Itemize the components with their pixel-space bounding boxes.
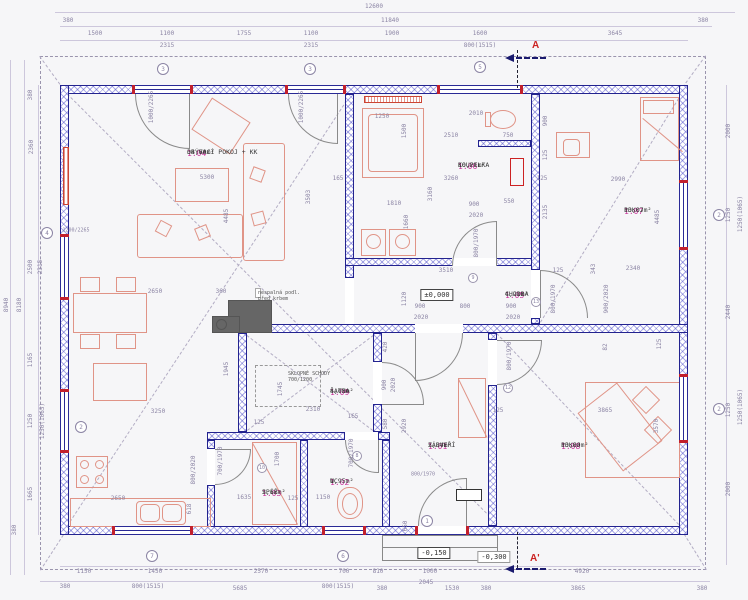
wall-satna-left (238, 333, 247, 432)
jamb-mark (60, 297, 69, 300)
window-right-room108 (679, 377, 688, 440)
wall-bath-bottom (345, 258, 540, 266)
section-line-bottom (517, 532, 518, 568)
wall-middle-horizontal (238, 324, 688, 333)
door-gap-room107 (531, 270, 540, 318)
jamb-mark (437, 85, 440, 94)
toilet-bath-tank (485, 112, 491, 127)
dim-label: 3645 (608, 31, 622, 37)
dim-line (60, 26, 712, 27)
opening-tag: 10 (257, 463, 267, 473)
jamb-mark (190, 85, 193, 94)
opening-living-chodba (345, 278, 354, 324)
room-area: 5,84m² (428, 442, 451, 450)
dim-label: 1700 (275, 452, 281, 466)
note-line: před krbem (258, 296, 288, 302)
room-area: 34,60m² (187, 149, 214, 157)
radiator-bath (364, 96, 422, 103)
dim-label: 420 (383, 342, 389, 353)
dim-label: 380 (28, 90, 34, 101)
dim-label: 3570 (654, 419, 660, 433)
dim-label: 1945 (224, 362, 230, 376)
dim-label: 800/1970 (411, 473, 435, 478)
dim-label: 2020 (414, 315, 428, 321)
door-gap-room108 (488, 340, 497, 385)
jamb-mark (466, 526, 469, 535)
kitchen-island (93, 363, 147, 401)
door-leaf (540, 270, 541, 318)
door-gap-entrance (418, 526, 466, 535)
dim-label: 618 (187, 504, 193, 515)
grid-bubble: 6 (337, 550, 349, 562)
window-bottom-wc (325, 526, 363, 535)
wall-bath-niche (478, 140, 531, 147)
dim-label: 1150 (316, 495, 330, 501)
dining-chair (116, 277, 136, 292)
door-leaf (466, 478, 467, 526)
dim-label: 1100 (160, 31, 174, 37)
grid-bubble: 7 (146, 550, 158, 562)
door-leaf (189, 94, 190, 149)
dim-label: 810 (373, 569, 384, 575)
section-arrow-top (505, 54, 514, 62)
dim-label: 165 (333, 176, 344, 182)
sink-bowl (140, 504, 160, 522)
section-arrow-bottom (505, 565, 514, 573)
dim-line (24, 60, 25, 575)
dim-label: 1745 (278, 382, 284, 396)
dim-label: 1250 (375, 114, 389, 120)
dim-label: 2570 (254, 569, 268, 575)
dim-label: 800(1515) (322, 584, 355, 590)
door-leaf (382, 404, 424, 405)
room-area: 1,95m² (330, 478, 353, 486)
wall-satna-bottom-a (207, 432, 345, 440)
wall-spiz-left-a (207, 440, 215, 449)
toilet-bath (490, 110, 516, 129)
jamb-mark (679, 374, 688, 377)
wall-wc-right (382, 440, 390, 527)
dim-label: 750 (503, 133, 514, 139)
dim-label: 2360 (29, 140, 35, 154)
dim-label: 1250 (726, 208, 732, 222)
toilet-wc-bowl (342, 493, 358, 515)
grid-bubble: 4 (41, 227, 53, 239)
dim-label: 4485 (655, 210, 661, 224)
wall-spiz-wc (300, 440, 308, 527)
dim-label: 2000 (726, 124, 732, 138)
door-gap-spiz (207, 449, 215, 485)
grid-bubble: 2 (75, 421, 87, 433)
grid-bubble: 2 (713, 403, 725, 415)
door-gap-hall-chodba (415, 324, 463, 333)
jamb-mark (322, 526, 325, 535)
dim-label: 1665 (28, 487, 34, 501)
grid-bubble: 5 (474, 61, 486, 73)
dim-label: 900 (506, 304, 517, 310)
dim-label: 700/1970 (349, 439, 355, 468)
dim-label: 3250 (151, 409, 165, 415)
dim-line (10, 60, 11, 575)
dim-label: 1100 (304, 31, 318, 37)
dim-label: 700 (339, 569, 350, 575)
dim-label: 2135 (543, 205, 549, 219)
dim-label: 125 (537, 176, 548, 182)
opening-tag: 13 (531, 297, 541, 307)
window-terrace-top (440, 85, 520, 94)
dim-label: 165 (348, 414, 359, 420)
room-area: 2,66m² (262, 489, 285, 497)
section-dash-bottom (516, 568, 546, 570)
radiator-left (63, 147, 69, 205)
section-line-top (517, 50, 518, 88)
dim-label: 2315 (160, 43, 174, 49)
dining-chair (80, 277, 100, 292)
washing-machine-door (366, 234, 381, 249)
dim-label: 1500 (88, 31, 102, 37)
dim-label: 1900 (385, 31, 399, 37)
dim-label: 800/2020 (191, 456, 197, 485)
dim-label: 900/2020 (604, 285, 610, 314)
dining-chair (116, 334, 136, 349)
note-line: 700/1200 (288, 377, 312, 383)
door-leaf (496, 221, 497, 266)
jamb-mark (363, 526, 366, 535)
wall-satna-right-upper (373, 333, 382, 362)
dim-label: 2500 (28, 260, 34, 274)
stove-circle (216, 319, 227, 330)
dim-label: 2000 (726, 482, 732, 496)
dim-label: 1000/2265 (299, 91, 305, 124)
window-bottom-kitchen (115, 526, 190, 535)
dim-label: 4920 (575, 569, 589, 575)
folding-stairs-note: SKLOPNÉ SCHODY 700/1200 (286, 370, 290, 378)
sofa-vertical (243, 143, 285, 261)
jamb-mark (60, 389, 69, 392)
dining-chair (80, 334, 100, 349)
dim-label: 360 (216, 289, 227, 295)
french-door-top-1 (135, 85, 190, 94)
dim-label: 3510 (439, 268, 453, 274)
dim-label: 800 (460, 304, 471, 310)
room-area: 4,03m² (330, 388, 353, 396)
dim-label: 900 (469, 202, 480, 208)
dim-label: 1600 (473, 31, 487, 37)
dim-label: 12600 (365, 4, 383, 10)
section-label-bottom: A' (530, 553, 540, 564)
dim-label: 2020 (469, 213, 483, 219)
window-right-room107 (679, 183, 688, 247)
grid-bubble: 1 (421, 515, 433, 527)
dim-label: 900 (543, 116, 549, 127)
dim-label: 2920 (402, 419, 408, 433)
dim-line (55, 12, 735, 13)
dim-label: 1200/2265 (62, 229, 89, 234)
dim-label: 5685 (233, 586, 247, 592)
dim-label: 82 (603, 343, 609, 350)
room-area: 10,21m² (458, 162, 485, 170)
elevation-zero: ±0,000 (420, 289, 453, 301)
elevation-minus150: -0,150 (417, 547, 450, 559)
jamb-mark (60, 450, 69, 453)
wall-bath-room107 (531, 94, 540, 270)
dim-label: 3865 (598, 408, 612, 414)
dim-label: 800(1515) (132, 584, 165, 590)
dim-label: 3160 (428, 187, 434, 201)
dim-label: 2315 (304, 43, 318, 49)
dim-label: 380 (60, 584, 71, 590)
doormat (456, 489, 482, 501)
french-door-top-2 (288, 85, 343, 94)
door-leaf (415, 333, 416, 381)
jamb-mark (112, 526, 115, 535)
dim-label: 380 (698, 18, 709, 24)
jamb-mark (132, 85, 135, 94)
burner (95, 475, 104, 484)
dim-label: 2010 (469, 111, 483, 117)
dim-label: 1635 (237, 495, 251, 501)
dim-label: 1250 (726, 403, 732, 417)
dim-label: 2315 (38, 260, 44, 274)
dim-label: 1755 (237, 31, 251, 37)
grid-bubble: 3 (304, 63, 316, 75)
dim-label: 900 (382, 380, 388, 391)
dim-label: 700/1970 (218, 447, 224, 476)
dim-label: 11840 (381, 18, 399, 24)
dim-label: 580 (383, 419, 389, 430)
dim-label: 1250 (28, 414, 34, 428)
jamb-mark (679, 440, 688, 443)
dim-label: 125 (288, 496, 299, 502)
dim-label: 2990 (611, 177, 625, 183)
dim-label: 2650 (148, 289, 162, 295)
jamb-mark (415, 526, 418, 535)
dim-line (60, 40, 688, 41)
door-leaf (337, 94, 338, 144)
dim-label: 3260 (444, 176, 458, 182)
opening-tag: 12 (503, 383, 513, 393)
dim-label: 125 (254, 420, 265, 426)
dim-label: 1120 (402, 292, 408, 306)
burner (95, 460, 104, 469)
elevation-minus300: -0,300 (477, 551, 510, 563)
dim-label: 1250(1065) (738, 196, 744, 232)
dim-label: 380 (12, 525, 18, 536)
wall-satna-bottom-b (378, 432, 390, 440)
dim-label: 2340 (626, 266, 640, 272)
dim-label: 3503 (306, 190, 312, 204)
wall-living-bath (345, 94, 354, 278)
dim-label: 2440 (726, 305, 732, 319)
window-left-living (60, 237, 69, 297)
dim-label: 2510 (444, 133, 458, 139)
dim-label: 800/1970 (507, 342, 513, 371)
dim-label: 380 (481, 586, 492, 592)
dryer-door (395, 234, 410, 249)
dim-label: 1150 (77, 569, 91, 575)
dim-label: 380 (63, 18, 74, 24)
dim-label: 2310 (306, 407, 320, 413)
dim-label: 4485 (224, 209, 230, 223)
dim-label: 550 (504, 199, 515, 205)
dim-line (38, 85, 39, 535)
dim-label: 650 (403, 521, 409, 532)
dim-label: 125 (553, 268, 564, 274)
bathtub-inner (368, 114, 418, 172)
dim-label: 125 (657, 339, 663, 350)
burner (80, 475, 89, 484)
dim-label: 1450 (148, 569, 162, 575)
dim-label: 2020 (391, 378, 397, 392)
jamb-mark (190, 526, 193, 535)
dining-table (73, 293, 147, 333)
dim-label: 1530 (445, 586, 459, 592)
room-area: 13,07m² (624, 207, 651, 215)
section-label-top: A (532, 40, 539, 51)
dim-label: 2020 (506, 315, 520, 321)
door-leaf (378, 440, 379, 473)
dim-label: 1660 (404, 215, 410, 229)
dim-label: 800(1515) (464, 43, 497, 49)
dim-label: 1165 (28, 353, 34, 367)
bath-heater (510, 158, 524, 186)
jamb-mark (520, 85, 523, 94)
burner (80, 460, 89, 469)
grid-bubble: 3 (157, 63, 169, 75)
dim-label: 2045 (419, 580, 433, 586)
dim-label: 8180 (17, 298, 23, 312)
dim-label: 900 (415, 304, 426, 310)
floor-plan-drawing: nespalná podl. před krbem SKLOPNÉ SCHODY (0, 0, 748, 600)
room-area: 4,21m² (505, 291, 528, 299)
dim-label: 1810 (387, 201, 401, 207)
dim-label: 125 (543, 150, 549, 161)
grid-bubble: 2 (713, 209, 725, 221)
dim-label: 8940 (4, 298, 10, 312)
dim-label: 800/1970 (474, 229, 480, 258)
window-left-dining (60, 392, 69, 450)
dim-label: 343 (591, 264, 597, 275)
desk-chair (563, 139, 580, 156)
dim-line (40, 581, 710, 582)
dim-label: 380 (377, 586, 388, 592)
dim-label: 3865 (571, 586, 585, 592)
door-leaf (497, 340, 542, 341)
dim-label: 380 (697, 586, 708, 592)
jamb-mark (343, 85, 346, 94)
jamb-mark (285, 85, 288, 94)
dim-label: 1500 (402, 124, 408, 138)
dim-label: 125 (493, 408, 504, 414)
jamb-mark (679, 180, 688, 183)
jamb-mark (679, 247, 688, 250)
wall-hall-room108-a (488, 333, 497, 340)
room-area: 13,80m² (561, 442, 588, 450)
dim-label: 800/1970 (551, 285, 557, 314)
opening-tag: 9 (468, 273, 478, 283)
jamb-mark (60, 234, 69, 237)
fireplace-note: nespalná podl. před krbem (255, 288, 261, 298)
bed-pillow (643, 100, 674, 114)
dim-label: 1000 (423, 569, 437, 575)
dim-label: 1000/2265 (149, 91, 155, 124)
dim-label: 5300 (200, 175, 214, 181)
sink-bowl (162, 504, 182, 522)
dim-label: 1250(1065) (738, 389, 744, 425)
dim-label: 1250(1065) (40, 403, 46, 439)
wall-satna-right-lower (373, 404, 382, 432)
section-dash-top (516, 57, 546, 59)
exterior-wall-right (679, 85, 688, 535)
dim-label: 2650 (111, 496, 125, 502)
